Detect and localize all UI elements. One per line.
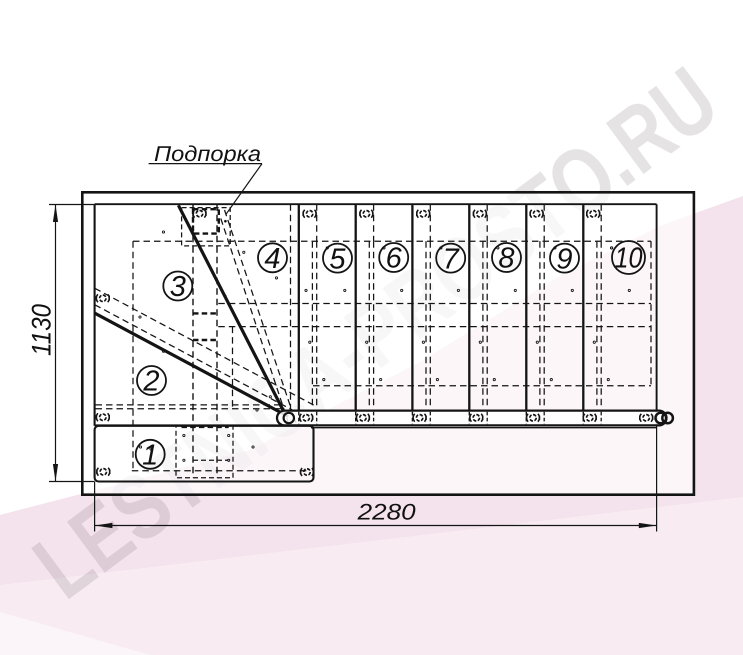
svg-text:4: 4 — [264, 243, 280, 275]
svg-text:1: 1 — [142, 440, 158, 472]
svg-text:5: 5 — [329, 243, 346, 275]
svg-text:Подпорка: Подпорка — [154, 142, 261, 166]
svg-text:3: 3 — [170, 271, 186, 303]
svg-text:6: 6 — [386, 243, 403, 275]
svg-text:9: 9 — [556, 243, 572, 275]
svg-text:7: 7 — [443, 243, 461, 275]
svg-text:2280: 2280 — [356, 500, 416, 525]
svg-text:1130: 1130 — [27, 304, 57, 356]
svg-text:8: 8 — [498, 243, 514, 275]
svg-text:2: 2 — [142, 366, 159, 398]
svg-text:10: 10 — [615, 243, 643, 275]
